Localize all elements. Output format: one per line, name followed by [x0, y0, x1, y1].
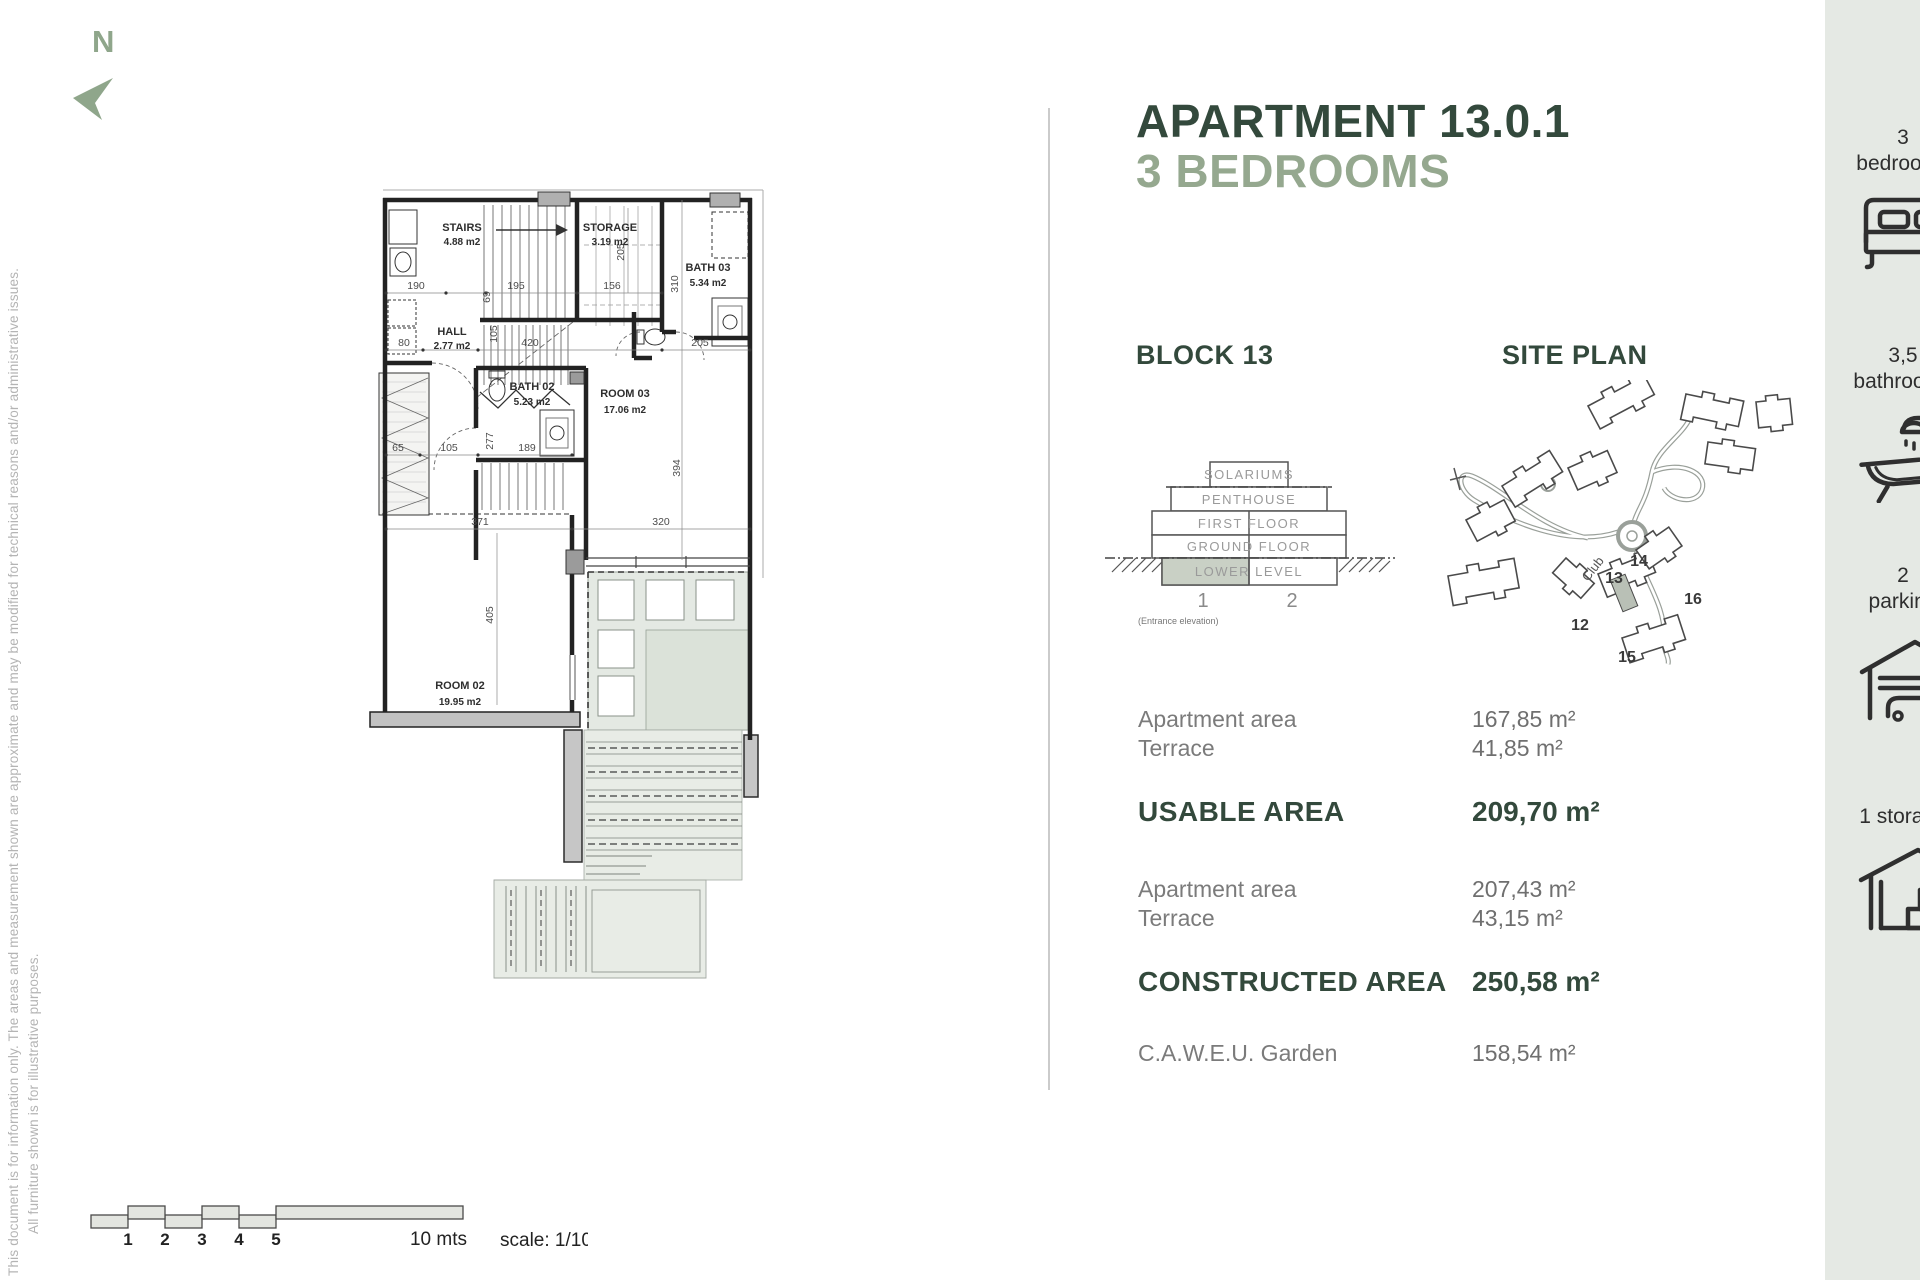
svg-text:1: 1: [1197, 590, 1208, 612]
terrace: [588, 572, 748, 730]
svg-text:3: 3: [197, 1230, 206, 1249]
svg-text:2: 2: [1286, 590, 1297, 612]
bed-icon: [1856, 190, 1920, 275]
svg-text:16: 16: [1684, 591, 1702, 608]
disclaimer-line-2: All furniture shown is for illustrative …: [26, 953, 41, 1234]
svg-text:5.34 m2: 5.34 m2: [690, 278, 727, 289]
elevation-caption: (Entrance elevation): [1138, 616, 1219, 626]
block-heading: BLOCK 13: [1136, 340, 1274, 371]
svg-text:190: 190: [407, 280, 425, 292]
page-title: APARTMENT 13.0.1: [1136, 94, 1570, 148]
divider: [1048, 108, 1050, 1090]
page-subtitle: 3 BEDROOMS: [1136, 144, 1450, 198]
exterior-stairs: [494, 730, 758, 978]
svg-text:195: 195: [507, 280, 525, 292]
svg-text:15: 15: [1618, 649, 1636, 666]
garden-value: 158,54 m²: [1472, 1040, 1576, 1067]
constructed-area-label: CONSTRUCTED AREA: [1138, 966, 1447, 998]
entrance-elevation-diagram: SOLARIUMS PENTHOUSE FIRST FLOOR GROUND F…: [1100, 450, 1400, 635]
svg-text:1: 1: [123, 1230, 132, 1249]
svg-text:4: 4: [234, 1230, 244, 1249]
svg-text:205: 205: [691, 337, 709, 349]
svg-text:17.06 m2: 17.06 m2: [604, 405, 647, 416]
sidebar-item-bathrooms: 3,5 bathrooms: [1838, 343, 1920, 395]
site-plan-drawing: Club 12 13 14 15 16: [1440, 380, 1800, 690]
usable-row-2-label: Terrace: [1138, 735, 1215, 762]
north-arrow-icon: [60, 60, 130, 130]
svg-text:GROUND FLOOR: GROUND FLOOR: [1187, 539, 1311, 554]
svg-text:189: 189: [518, 442, 536, 454]
constructed-row-1-value: 207,43 m²: [1472, 876, 1576, 903]
svg-text:STORAGE: STORAGE: [583, 222, 637, 234]
usable-row-1-value: 167,85 m²: [1472, 706, 1576, 733]
svg-text:ROOM 02: ROOM 02: [435, 680, 485, 692]
svg-text:69: 69: [481, 291, 493, 303]
scale-ratio-label: scale: 1/100: [500, 1230, 588, 1251]
svg-text:394: 394: [671, 459, 683, 477]
svg-text:105: 105: [488, 325, 500, 343]
site-buildings: [1447, 380, 1793, 664]
floor-plan: 190 69 195 156 205 310 80 105 420 205 65…: [360, 182, 780, 1028]
north-label: N: [92, 24, 114, 60]
svg-text:13: 13: [1605, 570, 1623, 587]
constructed-row-2-label: Terrace: [1138, 905, 1215, 932]
svg-text:405: 405: [484, 606, 496, 624]
svg-text:HALL: HALL: [437, 326, 467, 338]
svg-text:LOWER LEVEL: LOWER LEVEL: [1195, 564, 1303, 579]
svg-text:FIRST FLOOR: FIRST FLOOR: [1198, 516, 1300, 531]
svg-text:BATH 03: BATH 03: [685, 262, 730, 274]
constructed-area-value: 250,58 m²: [1472, 966, 1600, 998]
svg-text:PENTHOUSE: PENTHOUSE: [1202, 492, 1296, 507]
svg-text:105: 105: [440, 442, 458, 454]
constructed-row-2-value: 43,15 m²: [1472, 905, 1563, 932]
svg-text:5.23 m2: 5.23 m2: [514, 397, 551, 408]
svg-text:310: 310: [669, 275, 681, 293]
scale-ticks: 1 2 3 4 5: [123, 1230, 280, 1249]
usable-row-1-label: Apartment area: [1138, 706, 1297, 733]
svg-text:4.88 m2: 4.88 m2: [444, 237, 481, 248]
sidebar-item-bedrooms: 3 bedrooms: [1838, 125, 1920, 177]
svg-text:14: 14: [1630, 553, 1648, 570]
sidebar-item-storage: 1 storage: [1838, 804, 1920, 830]
svg-text:12: 12: [1571, 617, 1589, 634]
garage-icon: [1858, 632, 1920, 722]
svg-text:420: 420: [521, 337, 539, 349]
svg-text:ROOM 03: ROOM 03: [600, 388, 650, 400]
svg-text:371: 371: [471, 516, 489, 528]
brochure-page: This document is for information only. T…: [0, 0, 1920, 1280]
svg-text:2: 2: [160, 1230, 169, 1249]
site-plan-heading: SITE PLAN: [1502, 340, 1648, 371]
scale-end-label: 10 mts: [410, 1229, 467, 1250]
thick-wall: [370, 712, 580, 727]
sidebar-item-parking: 2 parking: [1838, 563, 1920, 615]
stairs-treads: [482, 205, 568, 510]
svg-text:SOLARIUMS: SOLARIUMS: [1204, 467, 1294, 482]
garden-label: C.A.W.E.U. Garden: [1138, 1040, 1337, 1067]
svg-text:320: 320: [652, 516, 670, 528]
svg-text:19.95 m2: 19.95 m2: [439, 697, 482, 708]
usable-row-2-value: 41,85 m²: [1472, 735, 1563, 762]
storage-icon: [1858, 838, 1920, 933]
svg-text:65: 65: [392, 442, 404, 454]
svg-text:156: 156: [603, 280, 621, 292]
bathtub-icon: [1856, 408, 1920, 503]
scale-bar: 1 2 3 4 5 10 mts scale: 1/100: [88, 1198, 588, 1260]
svg-text:BATH 02: BATH 02: [509, 381, 554, 393]
svg-text:277: 277: [484, 432, 496, 450]
svg-text:3.19 m2: 3.19 m2: [592, 237, 629, 248]
disclaimer-line-1: This document is for information only. T…: [6, 268, 21, 1276]
constructed-row-1-label: Apartment area: [1138, 876, 1297, 903]
usable-area-label: USABLE AREA: [1138, 796, 1345, 828]
svg-text:STAIRS: STAIRS: [442, 222, 482, 234]
svg-text:2.77 m2: 2.77 m2: [434, 341, 471, 352]
usable-area-value: 209,70 m²: [1472, 796, 1600, 828]
svg-text:5: 5: [271, 1230, 280, 1249]
svg-text:80: 80: [398, 337, 410, 349]
